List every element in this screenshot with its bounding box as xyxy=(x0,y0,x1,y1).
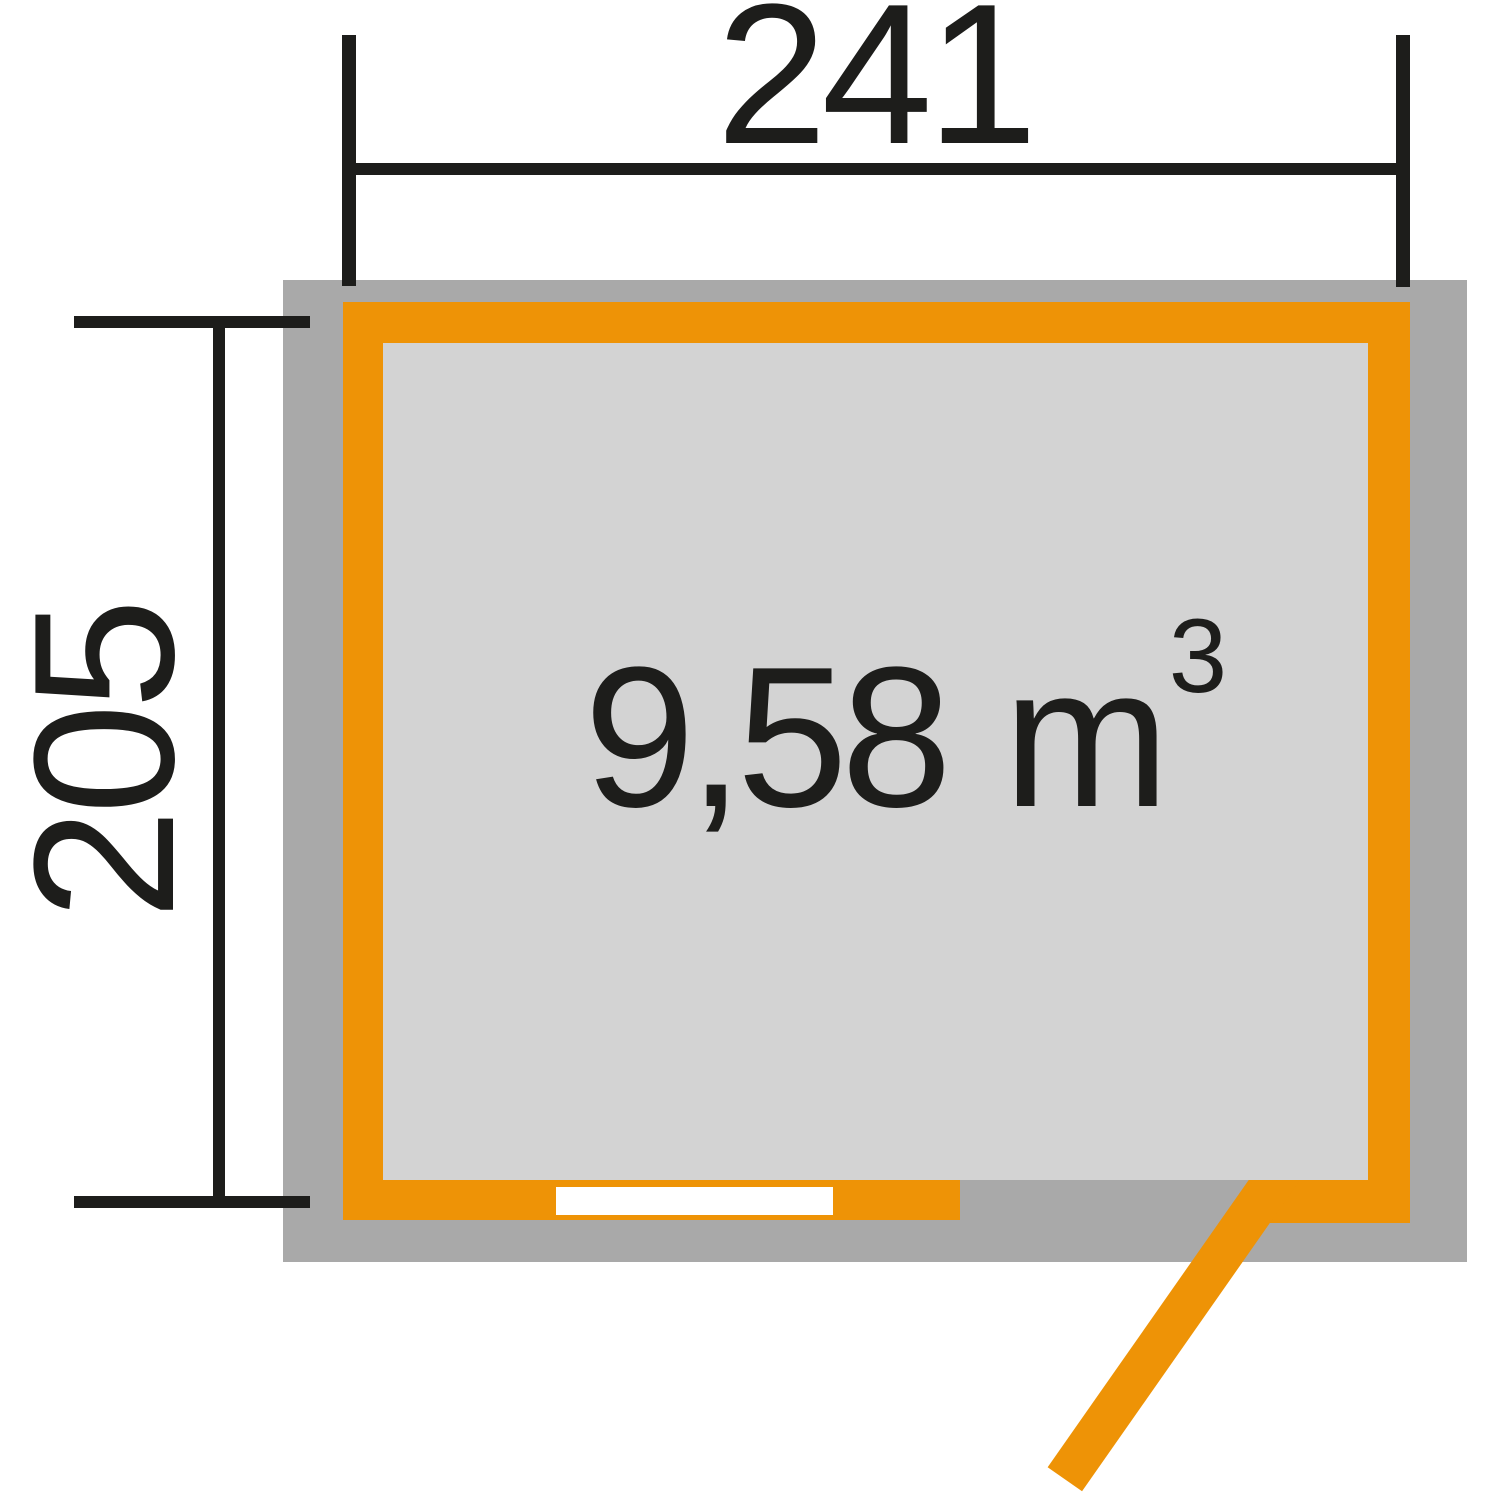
depth-dim-tick-bottom xyxy=(74,1196,310,1208)
volume-label: 9,58m3 xyxy=(383,638,1428,838)
depth-dim-label: 205 xyxy=(5,604,205,920)
depth-dim-tick-top xyxy=(74,316,310,328)
volume-exponent: 3 xyxy=(1169,604,1227,709)
window xyxy=(556,1187,833,1215)
volume-value: 9,58 xyxy=(584,626,945,849)
volume-unit: m xyxy=(1003,626,1163,849)
wall-top xyxy=(343,302,1410,343)
width-dim-label: 241 xyxy=(345,0,1403,175)
floor-plan-diagram: 241 205 9,58m3 xyxy=(0,0,1500,1500)
wall-left xyxy=(343,302,383,1220)
